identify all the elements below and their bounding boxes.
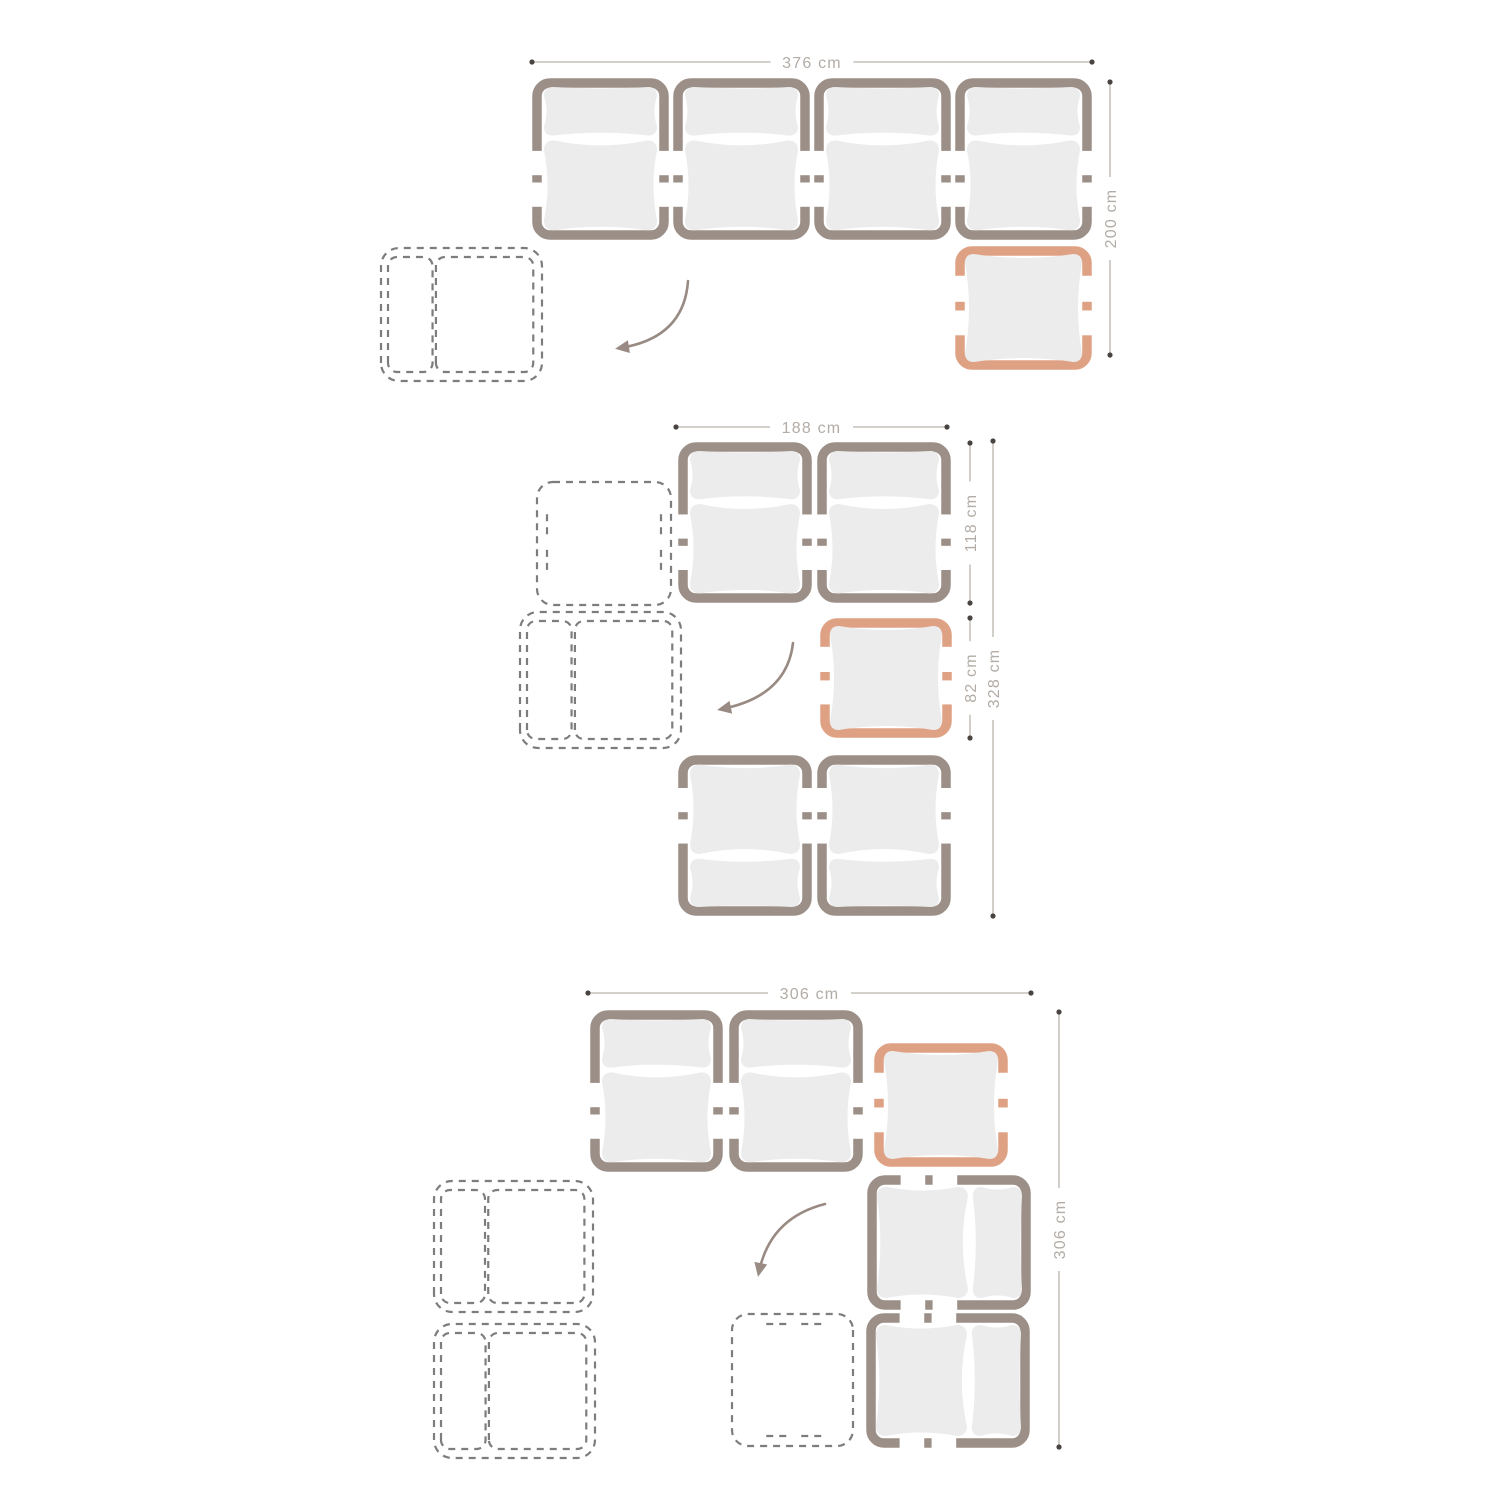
- frame-gap: [676, 514, 690, 538]
- dimension-label: 200 cm: [1103, 189, 1120, 249]
- sofa-module: [676, 447, 814, 598]
- backrest-cushion: [690, 451, 800, 499]
- configuration-diagrams-svg: 376 cm200 cm188 cm118 cm82 cm328 cm306 c…: [0, 0, 1500, 1500]
- frame-gap: [1080, 310, 1094, 335]
- frame-gap: [900, 1311, 925, 1325]
- frame-gap: [800, 788, 814, 812]
- seat-cushion: [877, 1187, 968, 1298]
- dashed-backrest-outline: [441, 1190, 485, 1303]
- dimension-label-group: 200 cm: [1097, 177, 1123, 260]
- frame-gap: [800, 514, 814, 538]
- sofa-module: [815, 760, 953, 911]
- frame-gap: [676, 819, 690, 843]
- endpoint-dot: [1056, 1009, 1061, 1014]
- dashed-sofa-module: [434, 1181, 593, 1312]
- dimension-label-group: 328 cm: [980, 637, 1006, 720]
- frame-gap: [711, 1083, 725, 1107]
- dashed-module-outline: [732, 1314, 853, 1446]
- frame-gap: [996, 1107, 1010, 1132]
- dimension-label-group: 306 cm: [1046, 1188, 1072, 1271]
- frame-gap: [676, 546, 690, 570]
- sofa-module: [671, 83, 812, 235]
- dimension-label: 118 cm: [963, 494, 980, 552]
- frame-gap: [1080, 276, 1094, 302]
- backrest-cushion: [829, 859, 939, 907]
- sofa-module: [812, 83, 953, 235]
- backrest-cushion: [602, 1019, 711, 1068]
- configuration-diagram-2: 188 cm118 cm82 cm328 cm: [520, 414, 1006, 919]
- sofa-module: [953, 83, 1094, 235]
- frame-gap: [530, 151, 544, 175]
- frame-gap: [996, 1073, 1010, 1099]
- seat-cushion: [826, 140, 939, 230]
- dimension-label: 188 cm: [782, 420, 842, 437]
- configuration-diagram-1: 376 cm200 cm: [381, 49, 1123, 381]
- frame-gap: [676, 788, 690, 812]
- dashed-sofa-module: [520, 612, 681, 748]
- seat-cushion: [876, 1325, 967, 1436]
- frame-gap: [657, 182, 671, 206]
- frame-gap: [798, 182, 812, 206]
- frame-gap: [932, 1436, 957, 1450]
- dimension-label: 306 cm: [1052, 1200, 1069, 1260]
- endpoint-dot: [1056, 1444, 1061, 1449]
- frame-gap: [900, 1436, 925, 1450]
- endpoint-dot: [990, 913, 995, 918]
- seat-cushion: [685, 140, 798, 230]
- frame-gap: [1080, 151, 1094, 175]
- sofa-module: [676, 760, 814, 911]
- frame-gap: [588, 1083, 602, 1107]
- frame-gap: [953, 182, 967, 206]
- backrest-cushion: [685, 87, 798, 136]
- frame-gap: [851, 1083, 865, 1107]
- backrest-cushion: [967, 87, 1080, 136]
- endpoint-dot: [1028, 990, 1033, 995]
- endpoint-dot: [944, 424, 949, 429]
- dimension-label-group: 82 cm: [957, 641, 983, 715]
- table-module: [872, 1048, 1010, 1162]
- frame-gap: [812, 151, 826, 175]
- frame-gap: [872, 1073, 886, 1099]
- frame-gap: [940, 647, 954, 672]
- frame-gap: [939, 788, 953, 812]
- endpoint-dot: [529, 59, 534, 64]
- frame-gap: [940, 680, 954, 704]
- configuration-diagram-3: 306 cm306 cm: [434, 980, 1072, 1458]
- frame-gap: [818, 680, 832, 704]
- backrest-cushion: [826, 87, 939, 136]
- dimension-label-group: 118 cm: [957, 482, 983, 565]
- endpoint-dot: [1089, 59, 1094, 64]
- dashed-table-module: [537, 482, 671, 605]
- table-cushion: [884, 1051, 998, 1159]
- frame-gap: [800, 819, 814, 843]
- table-module: [953, 251, 1094, 365]
- endpoint-dot: [673, 424, 678, 429]
- dimension-label: 82 cm: [963, 653, 980, 703]
- frame-gap: [818, 647, 832, 672]
- dashed-backrest-outline: [527, 621, 572, 739]
- endpoint-dot: [967, 600, 972, 605]
- backrest-cushion: [973, 1187, 1022, 1298]
- dashed-module-outline: [537, 482, 671, 605]
- frame-gap: [588, 1114, 602, 1138]
- frame-gap: [939, 182, 953, 206]
- dashed-seat-outline: [575, 621, 672, 739]
- frame-gap: [657, 151, 671, 175]
- frame-gap: [671, 151, 685, 175]
- dashed-sofa-module: [381, 248, 542, 381]
- frame-gap: [711, 1114, 725, 1138]
- sofa-module: [727, 1015, 865, 1167]
- arrowhead: [754, 1262, 767, 1277]
- dimension-label: 328 cm: [986, 649, 1003, 709]
- sofa-module: [815, 447, 953, 598]
- frame-gap: [953, 151, 967, 175]
- endpoint-dot: [990, 438, 995, 443]
- dashed-module-outline: [434, 1324, 595, 1458]
- curved-arrow: [722, 643, 793, 709]
- seat-cushion: [544, 140, 657, 230]
- frame-gap: [800, 546, 814, 570]
- endpoint-dot: [967, 615, 972, 620]
- frame-gap: [932, 1311, 957, 1325]
- frame-gap: [1080, 182, 1094, 206]
- backrest-cushion: [972, 1325, 1021, 1436]
- dashed-backrest-outline: [388, 257, 433, 372]
- seat-cushion: [741, 1072, 851, 1162]
- frame-gap: [851, 1114, 865, 1138]
- seat-cushion: [829, 504, 939, 593]
- frame-gap: [812, 182, 826, 206]
- dashed-module-outline: [434, 1181, 593, 1312]
- arrowhead: [717, 701, 732, 714]
- frame-gap: [872, 1107, 886, 1132]
- furniture-configuration-sheet: 376 cm200 cm188 cm118 cm82 cm328 cm306 c…: [0, 0, 1500, 1500]
- dashed-backrest-outline: [441, 1333, 486, 1449]
- frame-gap: [939, 819, 953, 843]
- frame-gap: [939, 151, 953, 175]
- dashed-module-outline: [381, 248, 542, 381]
- frame-gap: [933, 1298, 958, 1312]
- frame-gap: [815, 788, 829, 812]
- backrest-cushion: [690, 859, 800, 907]
- frame-gap: [815, 546, 829, 570]
- frame-gap: [939, 546, 953, 570]
- curved-arrow: [620, 281, 688, 348]
- table-cushion: [830, 626, 942, 730]
- seat-cushion: [602, 1072, 711, 1162]
- frame-gap: [727, 1083, 741, 1107]
- dashed-seat-outline: [436, 257, 533, 372]
- frame-gap: [798, 151, 812, 175]
- frame-gap: [933, 1173, 958, 1187]
- seat-cushion: [690, 504, 800, 593]
- dashed-seat-outline: [489, 1333, 586, 1449]
- endpoint-dot: [1107, 352, 1112, 357]
- arrowhead: [615, 340, 630, 353]
- dimension-label: 306 cm: [780, 986, 840, 1003]
- frame-gap: [727, 1114, 741, 1138]
- backrest-cushion: [829, 451, 939, 499]
- dashed-module-outline: [520, 612, 681, 748]
- backrest-cushion: [544, 87, 657, 136]
- endpoint-dot: [967, 735, 972, 740]
- sofa-module: [588, 1015, 725, 1167]
- endpoint-dot: [1107, 79, 1112, 84]
- frame-gap: [671, 182, 685, 206]
- endpoint-dot: [967, 440, 972, 445]
- seat-cushion: [690, 765, 800, 854]
- sofa-module: [530, 83, 671, 235]
- dashed-table-module: [732, 1314, 853, 1446]
- dashed-sofa-module: [434, 1324, 595, 1458]
- table-cushion: [965, 254, 1082, 362]
- curved-arrow: [759, 1204, 825, 1272]
- endpoint-dot: [585, 990, 590, 995]
- sofa-module: [872, 1173, 1026, 1312]
- seat-cushion: [829, 765, 939, 854]
- frame-gap: [530, 182, 544, 206]
- frame-gap: [815, 819, 829, 843]
- frame-gap: [953, 276, 967, 302]
- table-module: [818, 623, 954, 733]
- dashed-seat-outline: [488, 1190, 584, 1303]
- dimension-label: 376 cm: [782, 55, 842, 72]
- frame-gap: [901, 1298, 926, 1312]
- seat-cushion: [967, 140, 1080, 230]
- frame-gap: [939, 514, 953, 538]
- sofa-module: [871, 1311, 1025, 1450]
- backrest-cushion: [741, 1019, 851, 1068]
- frame-gap: [815, 514, 829, 538]
- frame-gap: [953, 310, 967, 335]
- frame-gap: [901, 1173, 926, 1187]
